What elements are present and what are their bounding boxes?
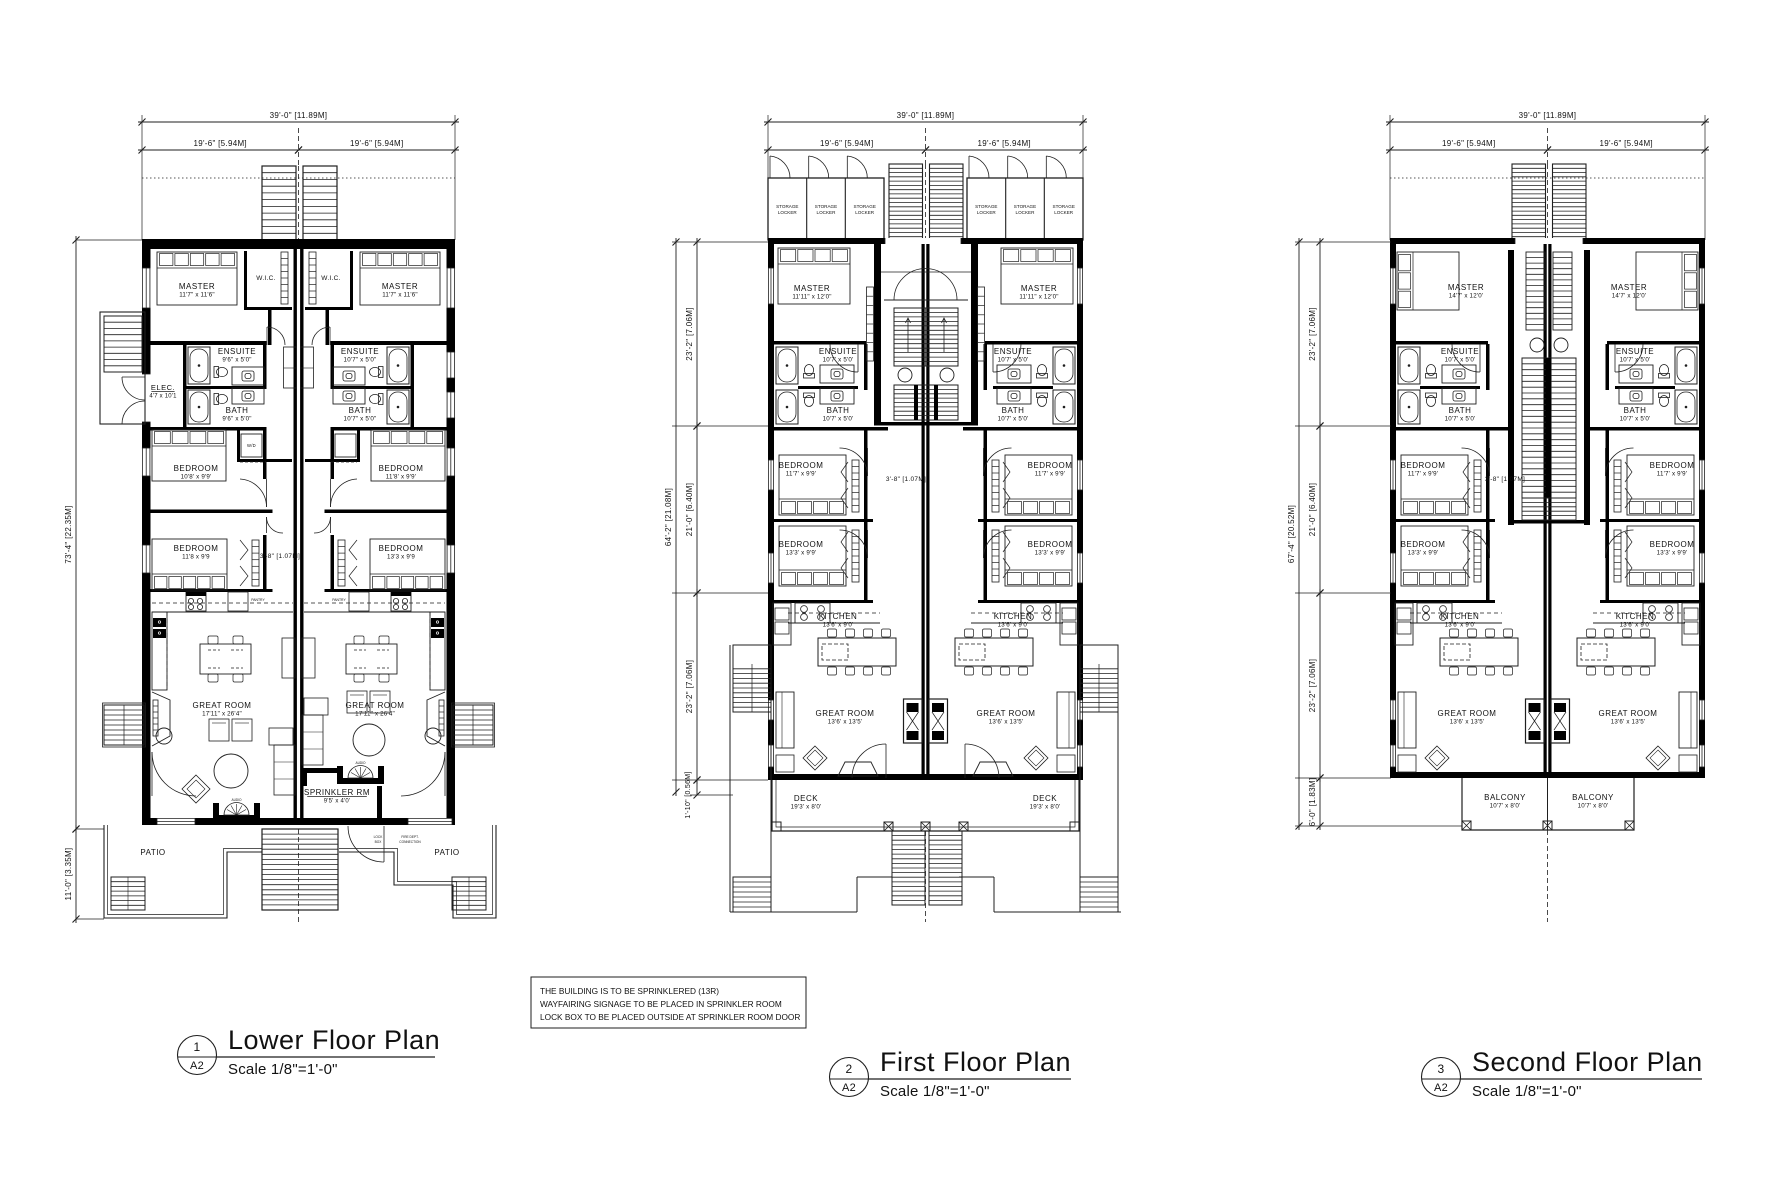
svg-text:BATH: BATH (1624, 406, 1647, 415)
svg-text:3'-8" [1.07M]: 3'-8" [1.07M] (260, 553, 300, 560)
svg-text:13'3 x 9'9: 13'3 x 9'9 (387, 554, 415, 561)
svg-text:19'3' x 8'0': 19'3' x 8'0' (1030, 804, 1061, 811)
svg-text:GREAT ROOM: GREAT ROOM (816, 709, 875, 718)
svg-text:4'7 x 10'1: 4'7 x 10'1 (149, 394, 177, 400)
svg-text:First Floor Plan: First Floor Plan (880, 1047, 1071, 1077)
svg-text:LOCKER: LOCKER (1016, 210, 1036, 215)
svg-text:39'-0" [11.89M]: 39'-0" [11.89M] (1519, 111, 1577, 120)
svg-text:LOCK: LOCK (374, 835, 384, 839)
svg-text:BEDROOM: BEDROOM (1650, 461, 1695, 470)
svg-text:73'-4" [22.35M]: 73'-4" [22.35M] (64, 505, 73, 563)
svg-text:11'11" x 12'0": 11'11" x 12'0" (1019, 294, 1058, 301)
svg-text:BEDROOM: BEDROOM (1028, 461, 1073, 470)
svg-text:DECK: DECK (794, 794, 818, 803)
svg-text:ENSUITE: ENSUITE (218, 347, 256, 356)
svg-text:2: 2 (846, 1062, 853, 1076)
svg-text:LOCKER: LOCKER (977, 210, 997, 215)
svg-text:BEDROOM: BEDROOM (379, 464, 424, 473)
svg-text:BATH: BATH (226, 406, 249, 415)
svg-text:STORAGE: STORAGE (776, 204, 798, 209)
svg-text:11'8 x 9'9: 11'8 x 9'9 (182, 554, 210, 561)
svg-text:10'7" x 5'0": 10'7" x 5'0" (344, 416, 377, 423)
svg-text:11'8' x 9'9': 11'8' x 9'9' (386, 474, 416, 481)
svg-text:A2: A2 (842, 1082, 856, 1094)
svg-text:CONNECTION: CONNECTION (399, 840, 421, 844)
svg-text:13'3' x 9'9': 13'3' x 9'9' (786, 550, 817, 557)
svg-text:LOCKER: LOCKER (855, 210, 875, 215)
svg-text:13'6' x 9'0': 13'6' x 9'0' (823, 622, 854, 629)
svg-text:ENSUITE: ENSUITE (819, 347, 857, 356)
svg-text:W/D: W/D (247, 443, 256, 448)
svg-text:10'7' x 5'0': 10'7' x 5'0' (1620, 416, 1651, 423)
svg-text:STORAGE: STORAGE (975, 204, 997, 209)
svg-text:A2: A2 (1434, 1082, 1448, 1094)
svg-text:BATH: BATH (1002, 406, 1025, 415)
svg-text:W.I.C.: W.I.C. (321, 275, 341, 282)
svg-text:FIRE DEPT.: FIRE DEPT. (401, 835, 418, 839)
svg-text:11'7' x 9'9': 11'7' x 9'9' (1035, 471, 1065, 478)
svg-text:Second Floor Plan: Second Floor Plan (1472, 1047, 1703, 1077)
svg-text:9'5' x 4'0': 9'5' x 4'0' (324, 799, 350, 805)
svg-text:GREAT ROOM: GREAT ROOM (1599, 709, 1658, 718)
svg-text:67'-4" [20.52M]: 67'-4" [20.52M] (1287, 505, 1296, 563)
svg-text:ENSUITE: ENSUITE (341, 347, 379, 356)
svg-text:23'-2" [7.06M]: 23'-2" [7.06M] (1308, 307, 1317, 360)
svg-text:3: 3 (1438, 1062, 1445, 1076)
svg-text:Lower Floor Plan: Lower Floor Plan (228, 1025, 440, 1055)
svg-text:MASTER: MASTER (1448, 283, 1484, 292)
svg-text:19'-6" [5.94M]: 19'-6" [5.94M] (820, 139, 873, 148)
svg-text:3'-8" [1.07M]: 3'-8" [1.07M] (886, 476, 926, 483)
svg-text:AUDIO: AUDIO (355, 761, 366, 765)
svg-text:10'7' x 5'0': 10'7' x 5'0' (998, 416, 1029, 423)
svg-text:BEDROOM: BEDROOM (379, 544, 424, 553)
svg-text:64'-2" [21.08M]: 64'-2" [21.08M] (664, 488, 673, 546)
svg-text:19'-6" [5.94M]: 19'-6" [5.94M] (193, 139, 246, 148)
svg-text:19'-6" [5.94M]: 19'-6" [5.94M] (350, 139, 403, 148)
svg-text:BEDROOM: BEDROOM (779, 540, 824, 549)
svg-text:MASTER: MASTER (1021, 284, 1057, 293)
svg-text:19'-6" [5.94M]: 19'-6" [5.94M] (977, 139, 1030, 148)
svg-text:MASTER: MASTER (382, 282, 418, 291)
svg-text:KITCHEN: KITCHEN (1616, 612, 1655, 621)
svg-text:LOCK BOX TO BE PLACED OUTSIDE: LOCK BOX TO BE PLACED OUTSIDE AT SPRINKL… (540, 1012, 800, 1022)
svg-text:13'6' x 13'5': 13'6' x 13'5' (828, 719, 863, 726)
svg-text:13'6' x 9'0': 13'6' x 9'0' (1445, 622, 1476, 629)
svg-text:MASTER: MASTER (179, 282, 215, 291)
svg-text:BEDROOM: BEDROOM (174, 464, 219, 473)
svg-text:19'-6" [5.94M]: 19'-6" [5.94M] (1599, 139, 1652, 148)
svg-text:11'7" x 11'6": 11'7" x 11'6" (179, 292, 215, 299)
svg-text:ENSUITE: ENSUITE (1616, 347, 1654, 356)
svg-text:PATIO: PATIO (434, 848, 459, 857)
svg-text:13'6' x 9'0': 13'6' x 9'0' (1620, 622, 1651, 629)
svg-text:KITCHEN: KITCHEN (994, 612, 1033, 621)
svg-text:23'-2" [7.06M]: 23'-2" [7.06M] (685, 660, 694, 713)
svg-text:10'7' x 5'0': 10'7' x 5'0' (1445, 357, 1476, 364)
svg-text:BATH: BATH (349, 406, 372, 415)
svg-text:11'7' x 9'9': 11'7' x 9'9' (1408, 471, 1438, 478)
svg-text:1: 1 (194, 1040, 201, 1054)
svg-text:STORAGE: STORAGE (815, 204, 837, 209)
svg-text:11'11" x 12'0": 11'11" x 12'0" (792, 294, 831, 301)
svg-text:THE BUILDING IS TO BE SPRINKLE: THE BUILDING IS TO BE SPRINKLERED (13R) (540, 986, 719, 996)
svg-text:10'7' x 5'0': 10'7' x 5'0' (1620, 357, 1651, 364)
svg-text:BEDROOM: BEDROOM (779, 461, 824, 470)
svg-text:KITCHEN: KITCHEN (819, 612, 858, 621)
svg-text:A2: A2 (190, 1060, 204, 1072)
svg-text:AUDIO: AUDIO (231, 798, 242, 802)
svg-text:ENSUITE: ENSUITE (1441, 347, 1479, 356)
svg-text:10'7' x 5'0': 10'7' x 5'0' (823, 357, 854, 364)
svg-text:10'7' x 8'0': 10'7' x 8'0' (1490, 803, 1521, 810)
svg-text:BEDROOM: BEDROOM (174, 544, 219, 553)
svg-text:ENSUITE: ENSUITE (994, 347, 1032, 356)
svg-text:BEDROOM: BEDROOM (1650, 540, 1695, 549)
svg-text:11'7" x 11'6": 11'7" x 11'6" (382, 292, 418, 299)
svg-text:13'3' x 9'9': 13'3' x 9'9' (1035, 550, 1066, 557)
svg-text:GREAT ROOM: GREAT ROOM (346, 701, 405, 710)
svg-text:GREAT ROOM: GREAT ROOM (977, 709, 1036, 718)
svg-text:6'-0" [1.83M]: 6'-0" [1.83M] (1308, 778, 1317, 827)
svg-text:23'-2" [7.06M]: 23'-2" [7.06M] (1308, 659, 1317, 712)
svg-text:GREAT ROOM: GREAT ROOM (1438, 709, 1497, 718)
svg-text:11'7' x 9'9': 11'7' x 9'9' (786, 471, 816, 478)
svg-text:Scale 1/8"=1'-0": Scale 1/8"=1'-0" (228, 1061, 338, 1078)
svg-text:13'3' x 9'9': 13'3' x 9'9' (1657, 550, 1688, 557)
svg-text:MASTER: MASTER (794, 284, 830, 293)
svg-text:LOCKER: LOCKER (817, 210, 837, 215)
svg-text:14'7' x 12'0': 14'7' x 12'0' (1449, 293, 1484, 300)
svg-text:17'11" x 26'4": 17'11" x 26'4" (202, 711, 242, 718)
svg-text:21'-0" [6.40M]: 21'-0" [6.40M] (1308, 483, 1317, 536)
svg-text:21'-0" [6.40M]: 21'-0" [6.40M] (685, 483, 694, 536)
svg-text:Scale 1/8"=1'-0": Scale 1/8"=1'-0" (1472, 1083, 1582, 1100)
svg-text:9'6" x 5'0": 9'6" x 5'0" (222, 416, 251, 423)
svg-text:BATH: BATH (1449, 406, 1472, 415)
svg-text:14'7' x 12'0': 14'7' x 12'0' (1612, 293, 1647, 300)
svg-text:10'7' x 5'0': 10'7' x 5'0' (1445, 416, 1476, 423)
svg-text:13'6' x 13'5': 13'6' x 13'5' (1611, 719, 1646, 726)
svg-text:23'-2" [7.06M]: 23'-2" [7.06M] (685, 307, 694, 360)
svg-text:10'7' x 5'0': 10'7' x 5'0' (998, 357, 1029, 364)
svg-text:17'11" x 26'4": 17'11" x 26'4" (355, 711, 395, 718)
svg-text:PANTRY: PANTRY (332, 598, 346, 602)
svg-text:13'6' x 9'0': 13'6' x 9'0' (998, 622, 1029, 629)
svg-text:13'6' x 13'5': 13'6' x 13'5' (1450, 719, 1485, 726)
svg-text:10'7' x 5'0': 10'7' x 5'0' (823, 416, 854, 423)
svg-text:BEDROOM: BEDROOM (1401, 540, 1446, 549)
svg-text:19'3' x 8'0': 19'3' x 8'0' (791, 804, 822, 811)
svg-text:9'6" x 5'0": 9'6" x 5'0" (222, 357, 251, 364)
svg-text:Scale 1/8"=1'-0": Scale 1/8"=1'-0" (880, 1083, 990, 1100)
svg-text:LOCKER: LOCKER (1054, 210, 1074, 215)
svg-text:39'-0" [11.89M]: 39'-0" [11.89M] (897, 111, 955, 120)
svg-text:MASTER: MASTER (1611, 283, 1647, 292)
svg-text:13'6' x 13'5': 13'6' x 13'5' (989, 719, 1024, 726)
svg-text:SPRINKLER RM: SPRINKLER RM (304, 788, 370, 797)
svg-text:11'-0" [3.35M]: 11'-0" [3.35M] (64, 848, 73, 901)
svg-text:STORAGE: STORAGE (854, 204, 876, 209)
svg-text:10'8' x 9'9': 10'8' x 9'9' (181, 474, 212, 481)
svg-text:STORAGE: STORAGE (1053, 204, 1075, 209)
svg-text:W.I.C.: W.I.C. (256, 275, 276, 282)
svg-text:ELEC.: ELEC. (151, 383, 175, 392)
svg-text:39'-0" [11.89M]: 39'-0" [11.89M] (270, 111, 328, 120)
svg-text:BALCONY: BALCONY (1572, 793, 1614, 802)
svg-text:BEDROOM: BEDROOM (1028, 540, 1073, 549)
svg-text:13'3' x 9'9': 13'3' x 9'9' (1408, 550, 1439, 557)
svg-text:BALCONY: BALCONY (1484, 793, 1526, 802)
svg-text:WAYFAIRING SIGNAGE TO BE PLAC: WAYFAIRING SIGNAGE TO BE PLACED IN SPRIN… (540, 999, 782, 1009)
svg-text:19'-6" [5.94M]: 19'-6" [5.94M] (1442, 139, 1495, 148)
svg-text:BOX: BOX (375, 840, 383, 844)
svg-text:GREAT ROOM: GREAT ROOM (193, 701, 252, 710)
svg-text:BEDROOM: BEDROOM (1401, 461, 1446, 470)
svg-text:11'7' x 9'9': 11'7' x 9'9' (1657, 471, 1687, 478)
svg-text:10'7" x 5'0": 10'7" x 5'0" (344, 357, 377, 364)
svg-text:3'-8" [1.07M]: 3'-8" [1.07M] (1485, 476, 1525, 483)
svg-text:KITCHEN: KITCHEN (1441, 612, 1480, 621)
svg-text:PANTRY: PANTRY (251, 598, 265, 602)
svg-text:LOCKER: LOCKER (778, 210, 798, 215)
svg-text:BATH: BATH (827, 406, 850, 415)
svg-text:10'7' x 8'0': 10'7' x 8'0' (1578, 803, 1609, 810)
svg-text:PATIO: PATIO (140, 848, 165, 857)
svg-text:STORAGE: STORAGE (1014, 204, 1036, 209)
svg-text:DECK: DECK (1033, 794, 1057, 803)
